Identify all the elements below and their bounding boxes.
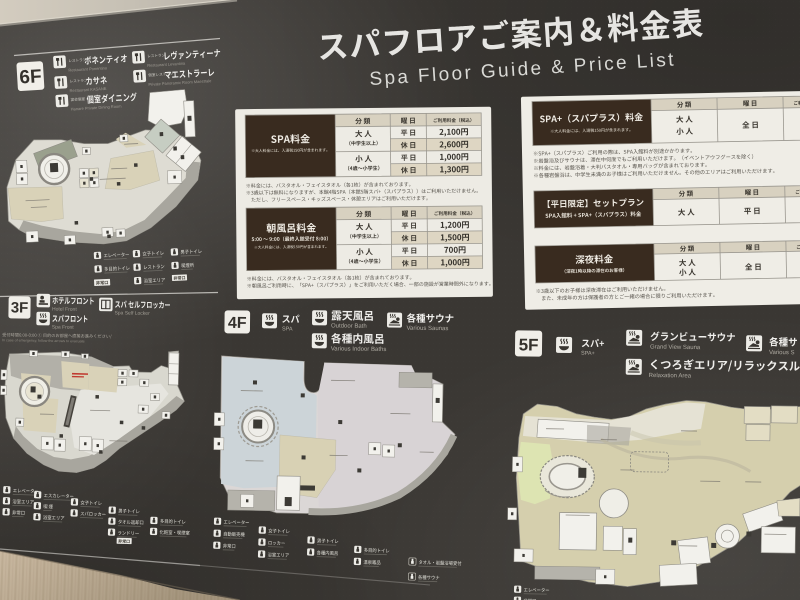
- svg-text:5F: 5F: [519, 335, 539, 354]
- svg-text:Outdoor Bath: Outdoor Bath: [331, 323, 367, 329]
- svg-text:Hotel Front: Hotel Front: [52, 306, 77, 312]
- svg-text:Spa Self Locker: Spa Self Locker: [114, 310, 150, 316]
- svg-text:Various S: Various S: [769, 350, 795, 356]
- svg-text:Relaxation Area: Relaxation Area: [649, 373, 692, 380]
- svg-text:SPA+: SPA+: [581, 351, 595, 357]
- svg-text:Grand View Sauna: Grand View Sauna: [650, 345, 701, 352]
- svg-text:4F: 4F: [228, 315, 247, 332]
- svg-text:3F: 3F: [11, 299, 29, 316]
- svg-text:6F: 6F: [19, 66, 42, 88]
- svg-text:Various Indoor Baths: Various Indoor Baths: [331, 346, 387, 353]
- svg-text:Spa Front: Spa Front: [52, 324, 75, 330]
- svg-text:SPA: SPA: [282, 326, 293, 332]
- svg-text:Various Saunas: Various Saunas: [406, 326, 448, 332]
